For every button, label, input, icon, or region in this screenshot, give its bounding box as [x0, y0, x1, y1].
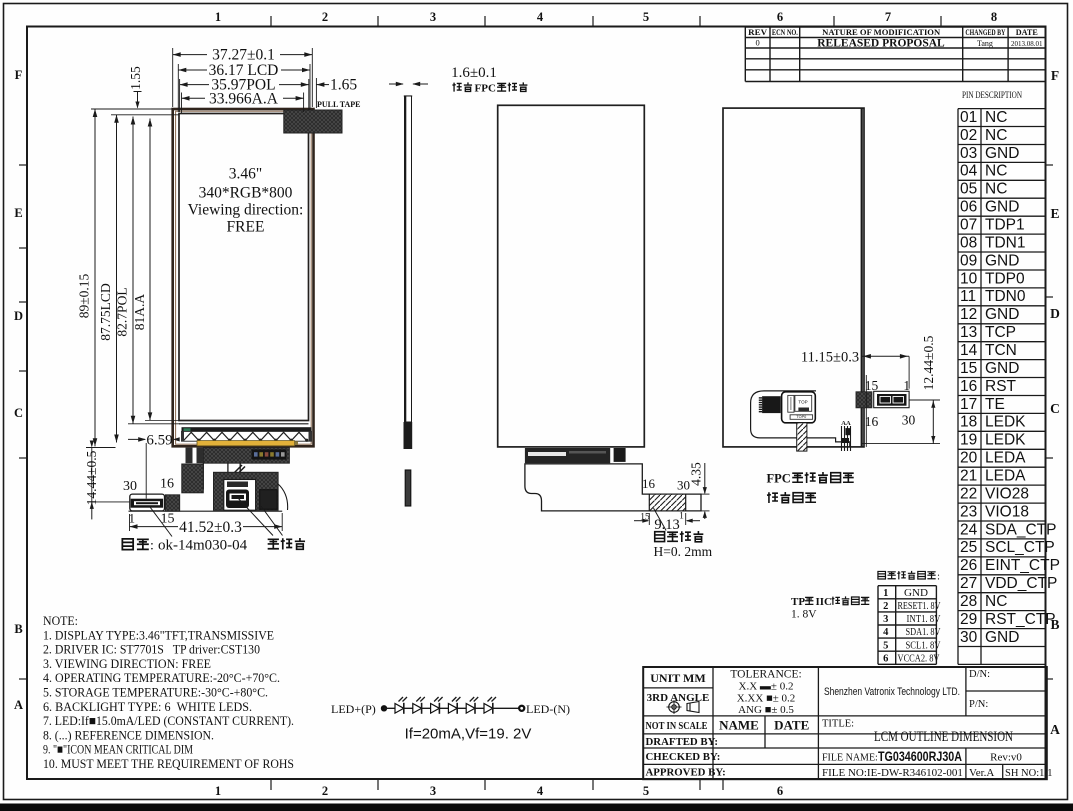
svg-text:3.46": 3.46" [229, 166, 262, 183]
svg-text:NC: NC [985, 593, 1007, 610]
svg-text:F: F [15, 68, 23, 82]
svg-text:LEDK: LEDK [985, 432, 1026, 449]
svg-text:7: 7 [885, 10, 891, 24]
svg-text:GND: GND [985, 360, 1019, 377]
svg-text:4. OPERATING TEMPERATURE:-20°C: 4. OPERATING TEMPERATURE:-20°C-+70°C. [43, 671, 280, 685]
svg-text:UNIT MM: UNIT MM [650, 671, 705, 685]
svg-text:2013.08.01: 2013.08.01 [1011, 40, 1043, 48]
svg-text:14: 14 [960, 342, 978, 359]
svg-text:1. DISPLAY TYPE:3.46"TFT,TRANS: 1. DISPLAY TYPE:3.46"TFT,TRANSMISSIVE [43, 628, 274, 642]
svg-text:NOTE:: NOTE: [43, 614, 78, 628]
svg-text:18: 18 [960, 414, 977, 431]
svg-text:6. BACKLIGHT TYPE: 6 WHITE L: 6. BACKLIGHT TYPE: 6 WHITE LEDS. [43, 700, 252, 714]
svg-text:FILE NO:IE-DW-R346102-001: FILE NO:IE-DW-R346102-001 [822, 767, 963, 779]
svg-text:C: C [14, 406, 23, 420]
svg-text:FILE NAME:: FILE NAME: [822, 752, 878, 763]
svg-text:25: 25 [960, 539, 977, 556]
svg-text:1.55: 1.55 [128, 66, 143, 90]
svg-text:5: 5 [643, 10, 649, 24]
svg-text:16: 16 [960, 378, 977, 395]
svg-text:LEDA: LEDA [985, 450, 1026, 467]
svg-text:2: 2 [322, 784, 328, 798]
svg-text:30: 30 [960, 629, 978, 646]
svg-text:NC: NC [985, 127, 1007, 144]
svg-text:21: 21 [960, 468, 977, 485]
svg-text:RELEASED PROPOSAL: RELEASED PROPOSAL [817, 37, 945, 49]
svg-text:09: 09 [960, 252, 977, 269]
svg-text:GND: GND [985, 252, 1019, 269]
svg-text:87.75LCD: 87.75LCD [98, 283, 113, 341]
svg-text:3: 3 [430, 784, 436, 798]
svg-text:5: 5 [643, 784, 649, 798]
svg-text:D: D [14, 309, 23, 323]
svg-text:B: B [14, 622, 22, 636]
svg-text:AA: AA [841, 420, 851, 427]
svg-text:ECN NO.: ECN NO. [772, 27, 798, 37]
svg-text:TCN: TCN [985, 342, 1017, 359]
svg-text:VDD_CTP: VDD_CTP [985, 575, 1057, 592]
svg-text:01: 01 [960, 109, 977, 126]
svg-text:81A.A: 81A.A [132, 294, 147, 331]
svg-text:TP: TP [791, 596, 805, 608]
svg-text::: : [150, 539, 154, 554]
svg-text:6: 6 [777, 10, 783, 24]
svg-text:15: 15 [960, 360, 977, 377]
svg-text:1: 1 [215, 10, 221, 24]
svg-text:1.65: 1.65 [330, 77, 357, 94]
svg-text:D: D [1050, 306, 1060, 321]
svg-text:TDP1: TDP1 [985, 217, 1025, 234]
svg-text:FPC: FPC [475, 82, 496, 94]
svg-text:E: E [14, 206, 22, 220]
svg-text:1: 1 [883, 588, 888, 599]
svg-text:LED+(P): LED+(P) [331, 702, 376, 716]
svg-text:VCCA2. 8V: VCCA2. 8V [898, 653, 941, 664]
svg-text:NOT IN SCALE: NOT IN SCALE [646, 721, 708, 732]
svg-text:DATE: DATE [774, 718, 809, 733]
svg-text:16: 16 [642, 476, 656, 491]
svg-text:APPROVED BY:: APPROVED BY: [646, 767, 726, 779]
svg-text:NAME: NAME [719, 718, 759, 733]
svg-text:340*RGB*800: 340*RGB*800 [199, 185, 293, 202]
svg-text:1.6±0.1: 1.6±0.1 [451, 65, 497, 81]
svg-text:17: 17 [960, 396, 977, 413]
svg-text:GND: GND [985, 306, 1019, 323]
svg-text:16: 16 [865, 414, 879, 429]
svg-text:15: 15 [640, 512, 650, 522]
svg-text:SDA_CTP: SDA_CTP [985, 521, 1057, 538]
svg-text:C: C [1050, 401, 1060, 416]
svg-text:5: 5 [883, 640, 888, 651]
svg-text:14.44±0.5: 14.44±0.5 [84, 450, 99, 505]
svg-text:02: 02 [960, 127, 977, 144]
svg-text:11.15±0.3: 11.15±0.3 [801, 349, 859, 365]
svg-text:22: 22 [960, 485, 977, 502]
svg-text:1: 1 [679, 511, 684, 521]
svg-text:RST_CTP: RST_CTP [985, 611, 1056, 628]
svg-text:CHANGED BY: CHANGED BY [965, 27, 1005, 37]
svg-text:VIO28: VIO28 [985, 485, 1029, 502]
svg-text:GND: GND [985, 199, 1019, 216]
svg-text:9. "■"ICON MEAN CRITICAL DIM: 9. "■"ICON MEAN CRITICAL DIM [43, 743, 193, 757]
svg-text:37.27±0.1: 37.27±0.1 [212, 47, 275, 64]
svg-text:LCM OUTLINE DIMENSION: LCM OUTLINE DIMENSION [874, 729, 1013, 745]
svg-text:FREE: FREE [227, 219, 265, 236]
svg-text:4: 4 [537, 784, 544, 798]
svg-text:10. MUST MEET THE REQUIREMENT: 10. MUST MEET THE REQUIREMENT OF ROHS [43, 757, 294, 771]
svg-text:TITLE:: TITLE: [822, 719, 854, 730]
svg-text:2. DRIVER IC: ST7701S TP dri: 2. DRIVER IC: ST7701S TP driver:CST130 [43, 643, 260, 657]
svg-text:X.X ▬± 0.2: X.X ▬± 0.2 [739, 681, 794, 693]
svg-text:TOP: TOP [798, 400, 807, 405]
svg-text:X.XX ■± 0.2: X.XX ■± 0.2 [737, 693, 796, 705]
svg-text:TOP0: TOP0 [796, 415, 806, 419]
svg-text:TOLERANCE:: TOLERANCE: [730, 669, 801, 681]
svg-text:NATURE OF MODIFICATION: NATURE OF MODIFICATION [822, 27, 941, 37]
svg-text:If=20mA,Vf=19. 2V: If=20mA,Vf=19. 2V [405, 726, 532, 743]
svg-text:P/N:: P/N: [969, 699, 988, 710]
svg-text:15: 15 [865, 378, 879, 393]
svg-text:6: 6 [883, 653, 888, 664]
svg-text:Ver.A: Ver.A [969, 767, 994, 779]
svg-text:16: 16 [160, 477, 174, 492]
svg-text:89±0.15: 89±0.15 [77, 273, 92, 318]
svg-text:INT1. 8V: INT1. 8V [907, 614, 942, 625]
svg-text:H=0. 2mm: H=0. 2mm [654, 544, 713, 559]
svg-text:Shenzhen Vatronix Technology L: Shenzhen Vatronix Technology LTD. [824, 686, 960, 698]
svg-text:LEDK: LEDK [985, 414, 1026, 431]
svg-text::: : [937, 572, 940, 583]
svg-text:41.52±0.3: 41.52±0.3 [179, 519, 242, 536]
svg-text:NC: NC [985, 109, 1007, 126]
svg-text:19: 19 [960, 432, 977, 449]
svg-text:FPC: FPC [767, 472, 791, 486]
svg-text:TCP: TCP [985, 324, 1016, 341]
svg-text:3RD ANGLE: 3RD ANGLE [647, 692, 710, 704]
svg-text:27: 27 [960, 575, 977, 592]
svg-text:TE: TE [985, 396, 1005, 413]
svg-text:LED-(N): LED-(N) [526, 702, 570, 716]
svg-text:30: 30 [123, 479, 137, 494]
svg-text:RESET1. 8V: RESET1. 8V [898, 601, 942, 612]
svg-text:GND: GND [985, 629, 1019, 646]
svg-text:9.13: 9.13 [654, 517, 679, 533]
svg-text:20: 20 [960, 450, 978, 467]
svg-text:Viewing direction:: Viewing direction: [188, 202, 304, 219]
svg-text:SCL1. 8V: SCL1. 8V [906, 640, 942, 651]
svg-text:TDN1: TDN1 [985, 234, 1025, 251]
svg-text:GND: GND [904, 588, 928, 599]
svg-text:SCL_CTP: SCL_CTP [985, 539, 1055, 556]
svg-text:03: 03 [960, 145, 977, 162]
svg-text:ok-14m030-04: ok-14m030-04 [158, 538, 248, 554]
svg-text:4.35: 4.35 [689, 462, 704, 486]
svg-text:TDP0: TDP0 [985, 270, 1025, 287]
svg-text:TG034600RJ30A: TG034600RJ30A [878, 748, 962, 764]
svg-text:05: 05 [960, 181, 977, 198]
svg-text:04: 04 [960, 163, 978, 180]
svg-text:A: A [1050, 722, 1060, 737]
svg-text:PULL TAPE: PULL TAPE [317, 100, 361, 109]
svg-text:RST: RST [985, 378, 1017, 395]
svg-text:NC: NC [985, 163, 1007, 180]
svg-text:TDN0: TDN0 [985, 288, 1026, 305]
svg-text:4: 4 [537, 10, 544, 24]
svg-text:8: 8 [991, 10, 997, 24]
svg-text:3: 3 [430, 10, 436, 24]
svg-text:E: E [1050, 206, 1059, 221]
svg-text:NC: NC [985, 181, 1007, 198]
svg-text:F: F [1051, 68, 1059, 83]
svg-text:33.966A.A: 33.966A.A [209, 90, 279, 107]
svg-text:23: 23 [960, 503, 977, 520]
svg-text:3. VIEWING DIRECTION: FREE: 3. VIEWING DIRECTION: FREE [43, 657, 211, 671]
svg-text:1: 1 [215, 784, 221, 798]
svg-text:ANG ■± 0.5: ANG ■± 0.5 [738, 704, 794, 716]
svg-text:26: 26 [960, 557, 977, 574]
svg-text:5. STORAGE TEMPERATURE:-30°C-+: 5. STORAGE TEMPERATURE:-30°C-+80°C. [43, 686, 268, 700]
svg-text:29: 29 [960, 611, 977, 628]
svg-text:LEDA: LEDA [985, 468, 1026, 485]
svg-text:12: 12 [960, 306, 977, 323]
svg-text:6: 6 [777, 784, 783, 798]
svg-text:07: 07 [960, 217, 977, 234]
svg-text:DRAFTED BY:: DRAFTED BY: [646, 736, 719, 748]
svg-text:Tang: Tang [977, 39, 993, 48]
svg-text:PIN DESCRIPTION: PIN DESCRIPTION [962, 91, 1022, 101]
svg-text:1. 8V: 1. 8V [791, 609, 817, 621]
svg-text:DATE: DATE [1016, 27, 1038, 37]
svg-text:06: 06 [960, 199, 977, 216]
svg-text:REV: REV [748, 27, 768, 37]
svg-text:6.59: 6.59 [146, 432, 172, 448]
svg-text:D/N:: D/N: [969, 669, 990, 680]
svg-text:12.44±0.5: 12.44±0.5 [921, 335, 936, 390]
svg-text:11: 11 [960, 288, 976, 305]
svg-text:SDA1. 8V: SDA1. 8V [906, 627, 942, 638]
svg-text:30: 30 [902, 413, 916, 428]
svg-text:24: 24 [960, 521, 978, 538]
svg-text:EINT_CTP: EINT_CTP [985, 557, 1060, 574]
svg-text:GND: GND [985, 145, 1019, 162]
svg-text:VIO18: VIO18 [985, 503, 1029, 520]
svg-text:82.7POL: 82.7POL [115, 287, 130, 336]
svg-text:2: 2 [322, 10, 328, 24]
svg-text:4: 4 [883, 627, 889, 638]
svg-text:28: 28 [960, 593, 977, 610]
svg-text:0: 0 [755, 38, 759, 48]
svg-text:7. LED:If■15.0mA/LED (CONSTANT: 7. LED:If■15.0mA/LED (CONSTANT CURRENT). [43, 714, 294, 728]
svg-text:2: 2 [883, 601, 888, 612]
svg-text:08: 08 [960, 234, 977, 251]
svg-text:A: A [14, 698, 23, 712]
svg-text:13: 13 [960, 324, 977, 341]
svg-text:CHECKED BY:: CHECKED BY: [646, 751, 721, 763]
svg-text:Rev:v0: Rev:v0 [990, 751, 1022, 763]
svg-text:IIC: IIC [816, 596, 833, 608]
svg-text:8. (...) REFERENCE DIMENSION.: 8. (...) REFERENCE DIMENSION. [43, 728, 214, 742]
svg-text:SH NO:1/1: SH NO:1/1 [1005, 768, 1053, 779]
svg-text:10: 10 [960, 270, 978, 287]
svg-text:3: 3 [883, 614, 888, 625]
